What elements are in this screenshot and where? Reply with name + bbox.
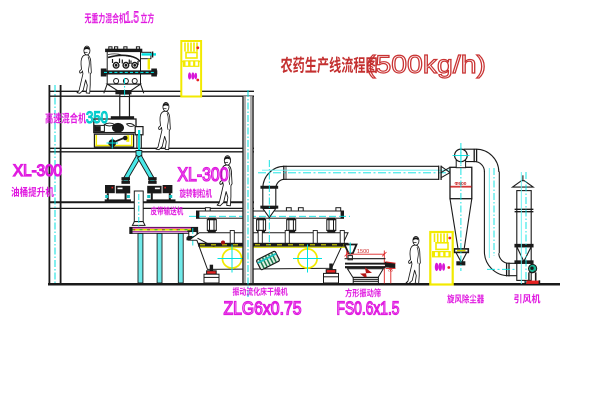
- svg-text:(500kg/h): (500kg/h): [366, 51, 486, 79]
- svg-text:XL-300: XL-300: [178, 164, 229, 186]
- svg-text:XL-300: XL-300: [13, 161, 62, 180]
- svg-text:FS0.6x1.5: FS0.6x1.5: [337, 299, 400, 319]
- svg-text:350: 350: [86, 108, 108, 127]
- svg-text:1500: 1500: [357, 249, 369, 255]
- svg-text:ZLG6x0.75: ZLG6x0.75: [224, 299, 302, 319]
- svg-text:1.5: 1.5: [125, 10, 139, 27]
